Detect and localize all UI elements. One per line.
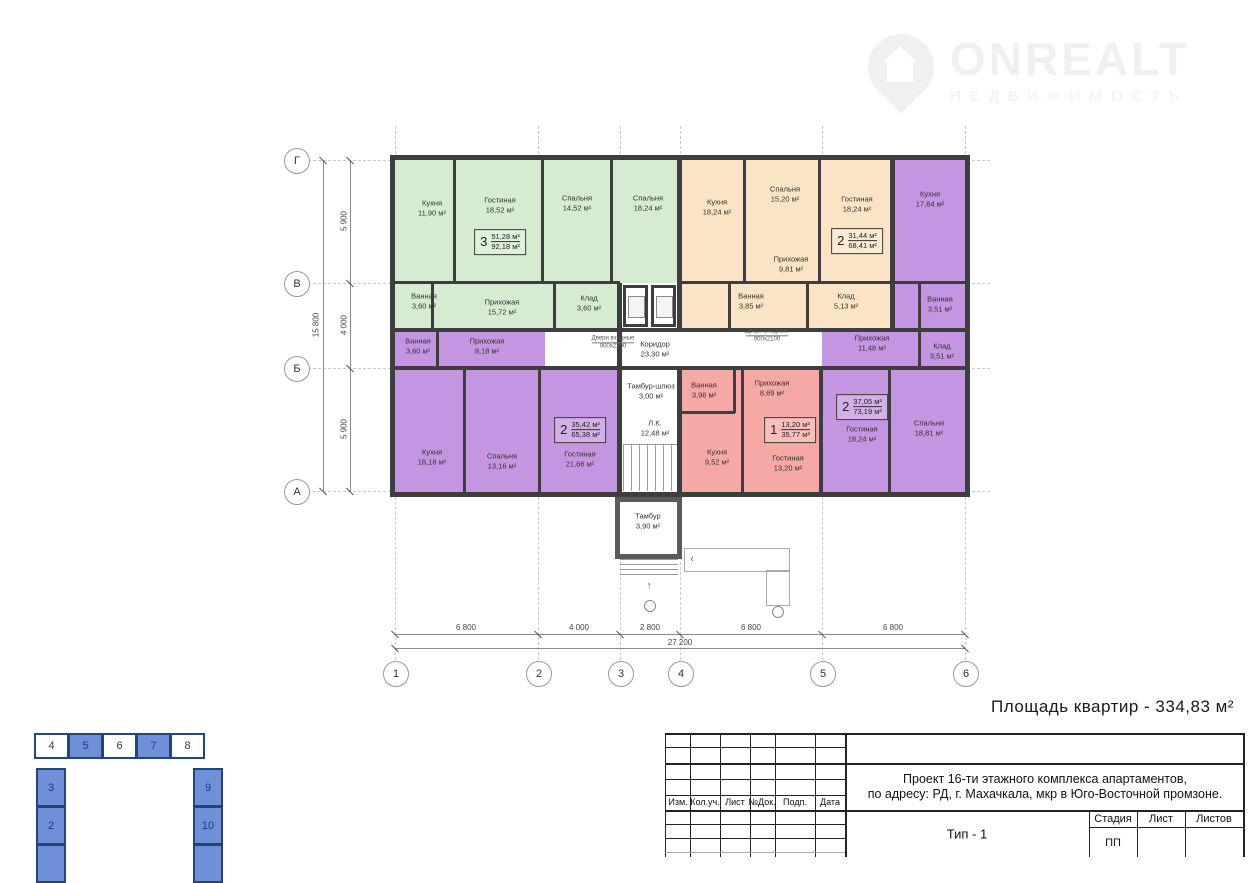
apartment-summary-box: 2 31,44 м²68,41 м² [831, 228, 883, 254]
dim-label: 4 000 [340, 315, 349, 335]
room-label: Прихожая11,48 м² [833, 333, 911, 353]
wall [890, 155, 895, 330]
room-label: Прихожая15,72 м² [463, 297, 541, 317]
ramp-outline [766, 570, 790, 606]
dim-label: 2 800 [640, 623, 660, 632]
apartment-summary-box: 2 35,42 м²65,38 м² [554, 417, 606, 443]
axis-bubble-b: Б [284, 356, 310, 382]
unit-cell: 9 [193, 768, 223, 807]
elevator-car-icon [628, 296, 645, 318]
tb-col-ndok: №Док. [748, 797, 775, 807]
dimension-line [350, 160, 351, 491]
apartment-summary-box: 2 37,05 м²73,19 м² [836, 394, 888, 420]
axis-bubble-a: А [284, 479, 310, 505]
wall [892, 281, 965, 284]
axis-bubble-1: 1 [383, 661, 409, 687]
room-label: Гостиная21,66 м² [541, 449, 619, 469]
dim-label: 5 900 [340, 211, 349, 231]
wall [538, 368, 541, 492]
room-label: Кухня11,90 м² [393, 198, 471, 218]
wall [680, 411, 735, 414]
wall [453, 160, 456, 281]
wall [743, 160, 746, 281]
logo-subtitle: НЕДВИЖИМОСТЬ [950, 88, 1212, 105]
axis-bubble-5: 5 [810, 661, 836, 687]
tb-col-podp: Подп. [783, 797, 807, 807]
logo-name: ONREALT [950, 36, 1212, 82]
unit-cell [36, 844, 66, 883]
room-label: Клад5,13 м² [807, 291, 885, 311]
project-title-line2: по адресу: РД, г. Махачкала, мкр в Юго-В… [868, 787, 1223, 801]
stairs [623, 444, 677, 491]
axis-bubble-3: 3 [608, 661, 634, 687]
room-label: Кухня17,64 м² [891, 189, 969, 209]
room-label: Ванная3,51 м² [901, 294, 979, 314]
unit-cell: 5 [68, 733, 103, 759]
room-label: Гостиная18,24 м² [818, 194, 896, 214]
ramp-arrow-icon: ‹ [690, 554, 693, 565]
ramp-outline [684, 548, 790, 572]
room-label: Прихожая9,81 м² [752, 254, 830, 274]
stage-header: Стадия [1094, 813, 1132, 825]
stage-value: ПП [1105, 837, 1121, 849]
unit-cell: 8 [170, 733, 205, 759]
unit-cell: 2 [36, 806, 66, 845]
type-label: Тип - 1 [947, 827, 987, 842]
room-label: Прихожая8,18 м² [448, 336, 526, 356]
wall [677, 155, 682, 330]
tb-col-data: Дата [820, 797, 840, 807]
dim-label: 6 800 [456, 623, 476, 632]
room-label: Ванная3,60 м² [379, 336, 457, 356]
wall [390, 366, 970, 370]
wall [395, 281, 620, 284]
unit-cell: 6 [102, 733, 137, 759]
room-label: Гостиная18,52 м² [461, 195, 539, 215]
entrance-arrow-icon: ↑ [647, 581, 652, 592]
axis-bubble-6: 6 [953, 661, 979, 687]
room-label: Клад3,60 м² [550, 293, 628, 313]
apartment-summary-box: 3 51,28 м²92,18 м² [474, 229, 526, 255]
door-annotation: Двери входные900х2100 [583, 335, 643, 350]
page: ONREALT НЕДВИЖИМОСТЬ [0, 0, 1248, 857]
wall [463, 368, 466, 492]
unit-cell: 10 [193, 806, 223, 845]
sheets-header: Листов [1196, 813, 1232, 825]
dim-label-total: 27 200 [668, 638, 692, 647]
axis-bubble-2: 2 [526, 661, 552, 687]
room-label: Спальня13,16 м² [463, 451, 541, 471]
ramp-post-icon [772, 606, 784, 618]
dim-label: 4 000 [569, 623, 589, 632]
room-label: Кухня18,24 м² [678, 197, 756, 217]
room-label: Спальня18,81 м² [890, 418, 968, 438]
dimension-line [395, 648, 965, 649]
room-label: Ванная3,85 м² [712, 291, 790, 311]
dim-label: 5 900 [340, 419, 349, 439]
room-label: Спальня18,24 м² [609, 193, 687, 213]
axis-bubble-4: 4 [668, 661, 694, 687]
room-label: Тамбур3,90 м² [609, 511, 687, 531]
tb-col-izm: Изм. [668, 797, 687, 807]
room-label: Кухня9,52 м² [678, 447, 756, 467]
elevator-car-icon [656, 296, 673, 318]
ramp-post-icon [644, 600, 656, 612]
wall [390, 328, 970, 332]
unit-cell [193, 844, 223, 883]
room-label: Тамбур-шлюз3,00 м² [612, 381, 690, 401]
logo-text: ONREALT НЕДВИЖИМОСТЬ [950, 36, 1212, 105]
entrance-steps [620, 559, 678, 575]
room-label: Спальня15,20 м² [746, 184, 824, 204]
axis-bubble-g: Г [284, 148, 310, 174]
room-label: Клад3,51 м² [903, 341, 981, 361]
room-label: Кухня18,18 м² [393, 447, 471, 467]
logo-house-icon [887, 60, 913, 82]
project-title-line1: Проект 16-ти этажного комплекса апартаме… [903, 772, 1187, 786]
axis-bubble-v: В [284, 271, 310, 297]
sheet-header: Лист [1149, 813, 1173, 825]
unit-cell: 4 [34, 733, 69, 759]
tb-col-list: Лист [725, 797, 745, 807]
room-label: Прихожая8,69 м² [733, 378, 811, 398]
door-annotation: Двери входные900х2100 [737, 328, 797, 343]
unit-cell: 3 [36, 768, 66, 807]
tb-col-koluch: Кол.уч. [690, 797, 720, 807]
dim-label: 6 800 [741, 623, 761, 632]
unit-cell: 7 [136, 733, 171, 759]
room-label: Ванная3,60 м² [385, 291, 463, 311]
wall [610, 160, 613, 281]
total-area-note: Площадь квартир - 334,83 м² [991, 697, 1234, 717]
wall [680, 281, 890, 284]
dim-label: 6 800 [883, 623, 903, 632]
apartment-summary-box: 1 13,20 м²35,77 м² [764, 417, 816, 443]
room-label: Гостиная13,20 м² [749, 453, 827, 473]
wall [541, 160, 544, 281]
dimension-line [323, 160, 324, 491]
room-label: Спальня14,52 м² [538, 193, 616, 213]
dim-label-total: 15 800 [312, 313, 321, 337]
room-label: Л.К.12,48 м² [616, 418, 694, 438]
